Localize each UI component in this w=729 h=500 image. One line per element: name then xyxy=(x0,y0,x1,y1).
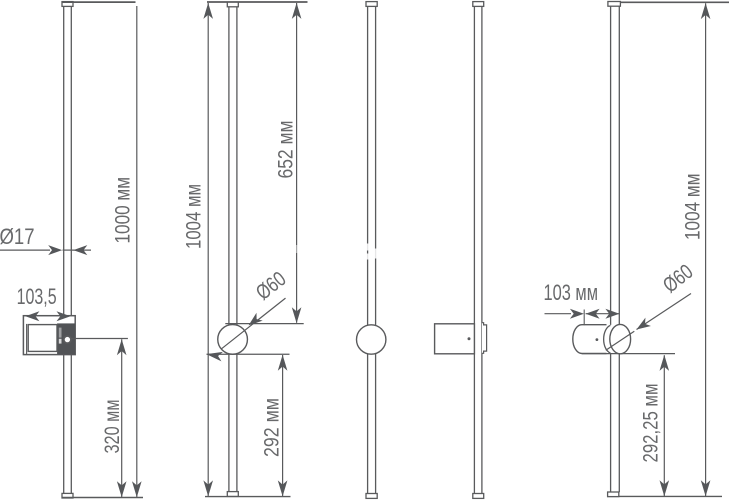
svg-text:320 мм: 320 мм xyxy=(101,400,124,454)
svg-text:1000 мм: 1000 мм xyxy=(111,177,134,244)
svg-text:1004 мм: 1004 мм xyxy=(682,174,705,241)
svg-text:1004 мм: 1004 мм xyxy=(183,184,206,249)
svg-text:292 мм: 292 мм xyxy=(261,398,284,457)
svg-text:652 мм: 652 мм xyxy=(275,121,298,179)
svg-text:292,25 мм: 292,25 мм xyxy=(640,384,663,463)
svg-text:103,5: 103,5 xyxy=(17,284,57,309)
svg-text:Ø60: Ø60 xyxy=(659,260,698,297)
svg-text:Ø17: Ø17 xyxy=(0,224,35,249)
svg-text:103 мм: 103 мм xyxy=(544,280,599,305)
